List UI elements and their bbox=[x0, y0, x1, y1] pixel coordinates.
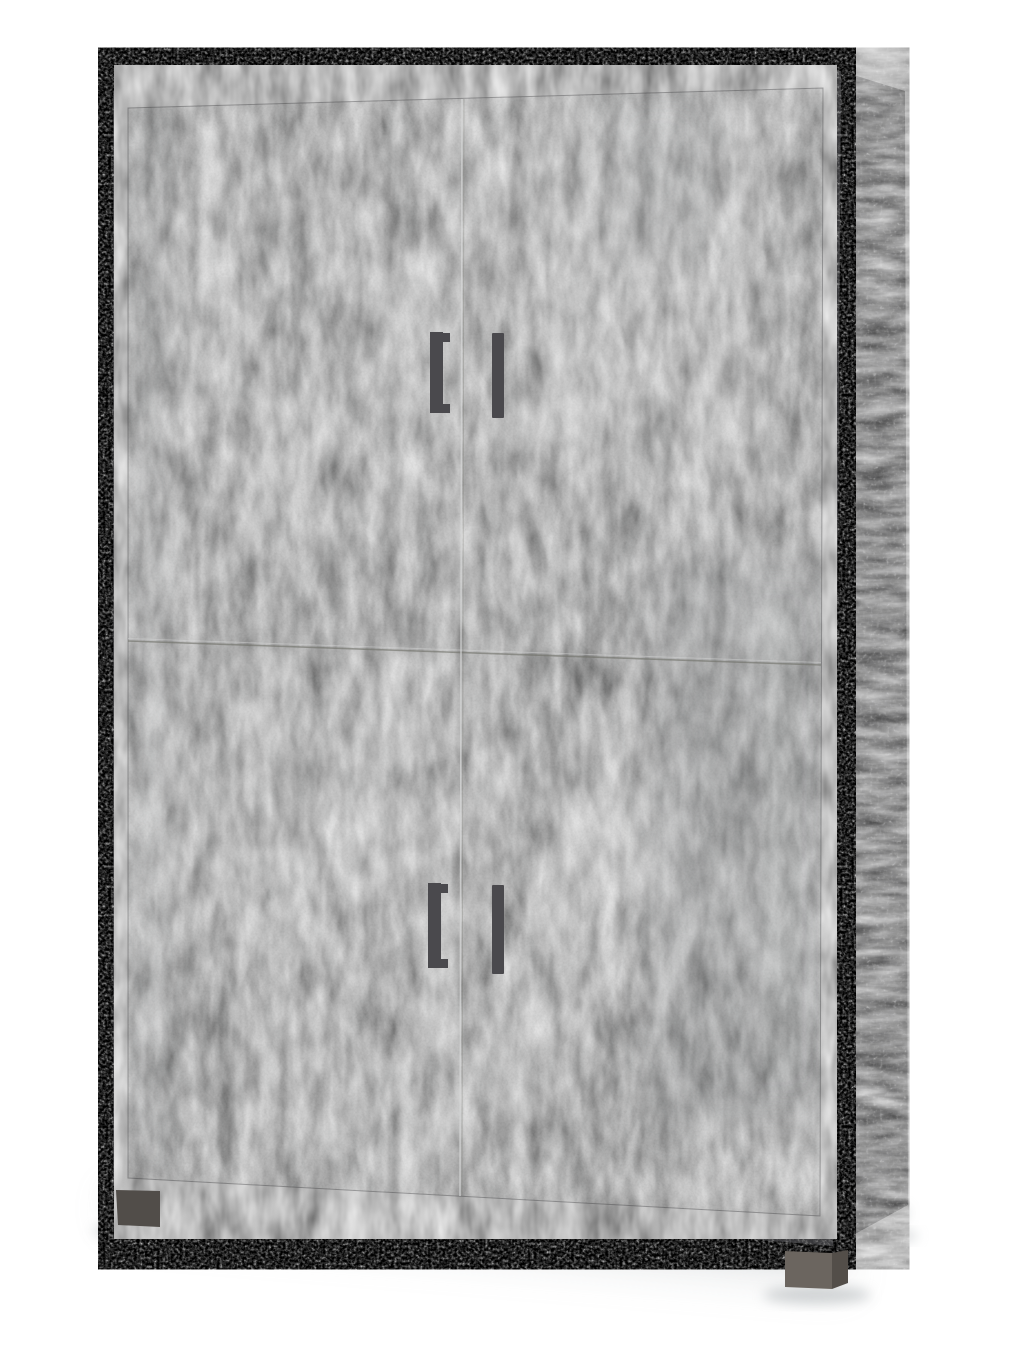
cabinet-product-image bbox=[0, 0, 1024, 1365]
foot-front-right-side bbox=[832, 1250, 848, 1289]
handle-bottom-right bbox=[492, 885, 504, 974]
handle-top-right bbox=[492, 333, 504, 418]
door-streak-patch bbox=[600, 88, 720, 258]
foot-left bbox=[116, 1190, 160, 1227]
foot-shadow-front-right bbox=[763, 1286, 871, 1304]
foot-front-right bbox=[785, 1250, 848, 1289]
cabinet-side-panel bbox=[833, 71, 908, 1246]
door-dark-patch bbox=[650, 560, 840, 1120]
door-lower-light bbox=[140, 660, 460, 880]
foot-front-right-face bbox=[785, 1251, 832, 1289]
product-photo bbox=[0, 0, 1024, 1365]
